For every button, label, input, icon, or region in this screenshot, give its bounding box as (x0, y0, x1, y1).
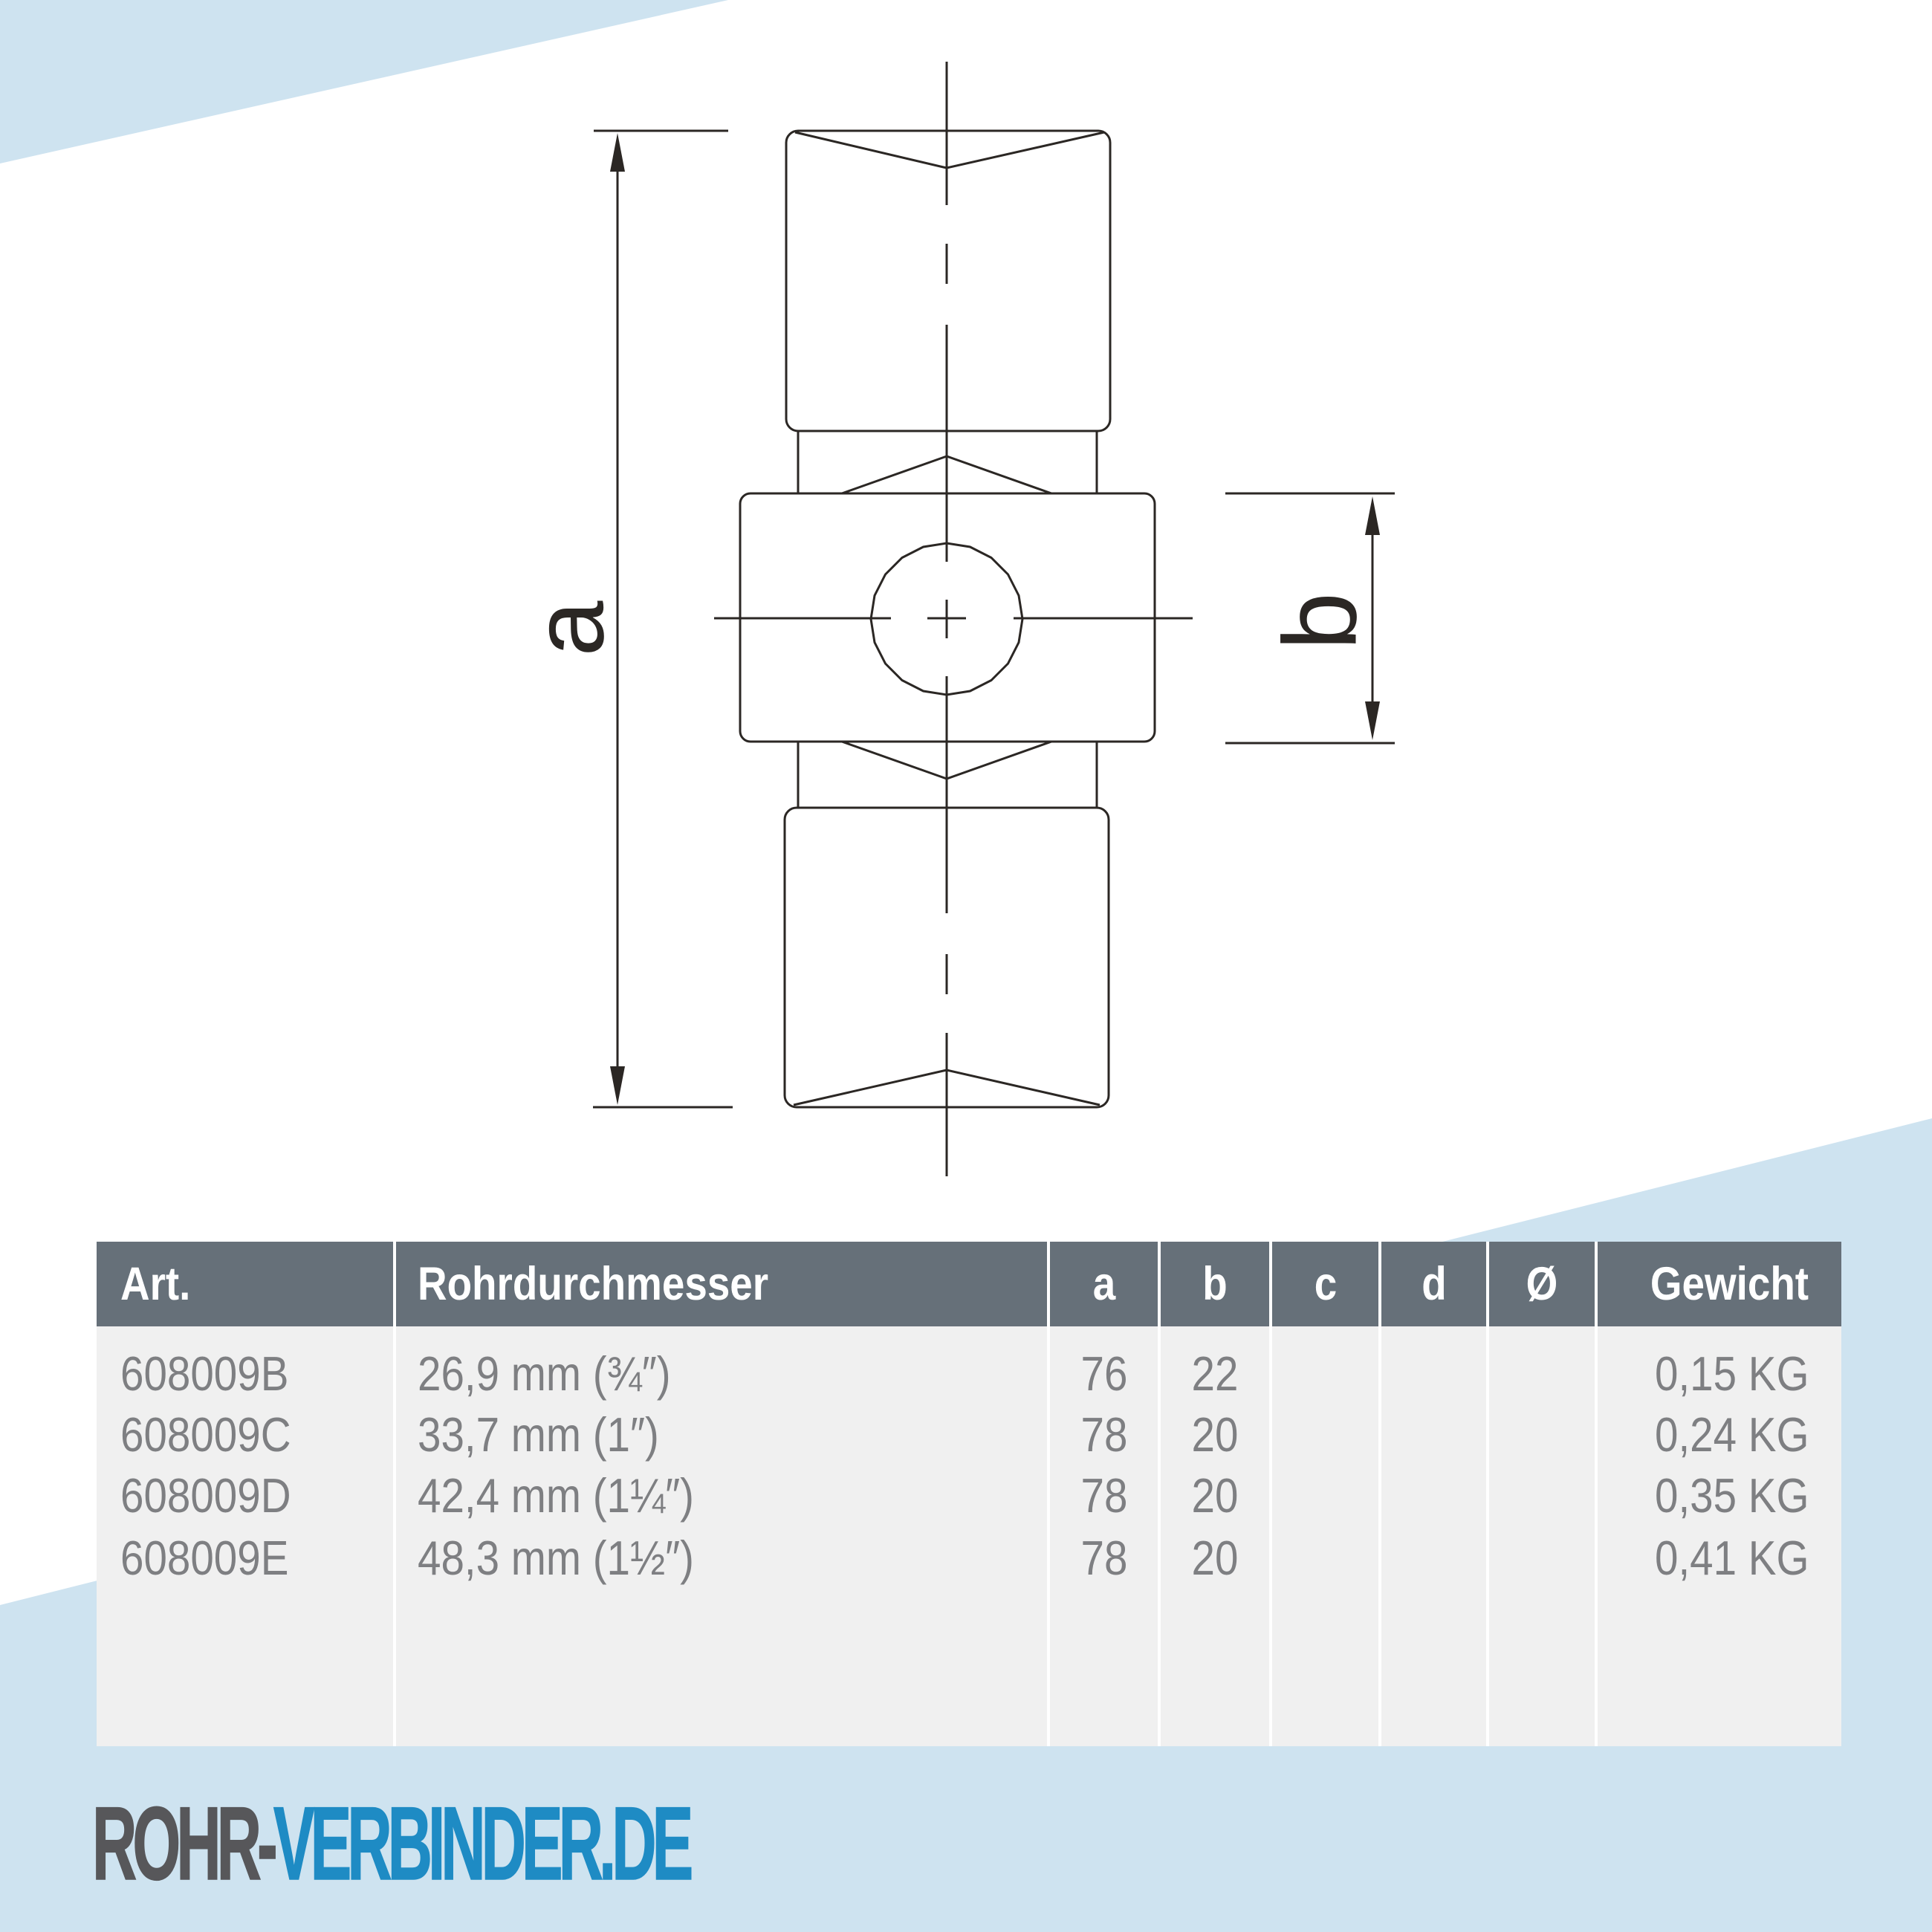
svg-text:a: a (513, 600, 625, 657)
svg-text:b: b (1262, 592, 1378, 650)
